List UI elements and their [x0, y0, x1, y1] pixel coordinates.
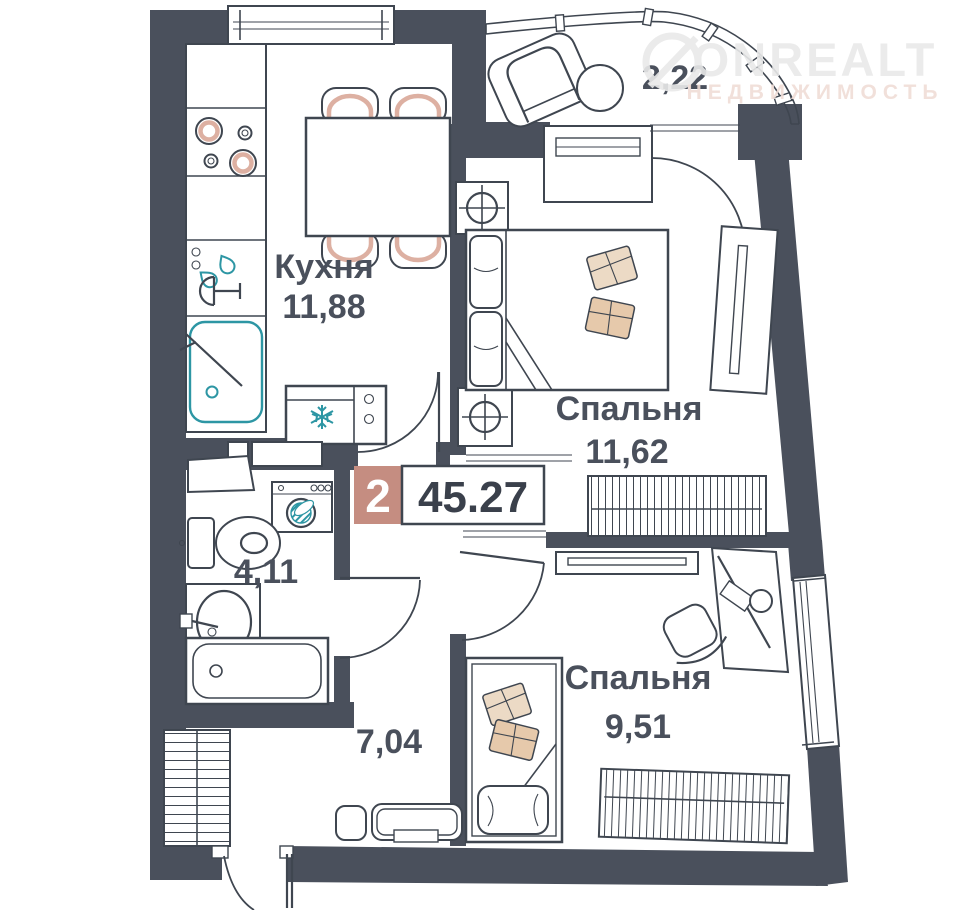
dining-table: [306, 118, 450, 236]
kitchen-label: Кухня: [274, 248, 373, 286]
bedroom2-label: Спальня: [565, 659, 712, 697]
nightstand: [458, 388, 512, 446]
threshold: [466, 455, 572, 461]
washing-machine: [272, 482, 332, 532]
kitchen-window: [228, 6, 394, 44]
bathroom-area: 4,11: [234, 553, 298, 591]
door-jamb: [212, 846, 228, 858]
double-bed: [466, 230, 668, 390]
bedroom2-door: [460, 552, 544, 640]
chair: [390, 232, 446, 268]
bathroom-door: [340, 578, 420, 658]
kitchen: [180, 44, 450, 444]
bedroom2-area: 9,51: [605, 708, 671, 746]
bench: [372, 804, 462, 842]
pillow: [478, 786, 548, 834]
bedroom1-label: Спальня: [556, 390, 703, 428]
kitchen-area: 11,88: [282, 288, 365, 326]
fridge: [286, 386, 386, 444]
bath-shelf: [188, 456, 254, 492]
hallway-area: 7,04: [356, 723, 422, 761]
wardrobe: [710, 226, 777, 394]
hall-wardrobe: [164, 730, 230, 846]
kitchen-sink: [180, 322, 262, 422]
entrance-door: [212, 846, 293, 910]
nightstand: [456, 182, 508, 234]
dining-set: [306, 88, 450, 268]
single-bed: [466, 658, 562, 842]
pouf: [336, 806, 366, 840]
watermark-brand: ONREALT: [693, 33, 938, 86]
bedroom1-area: 11,62: [585, 433, 668, 471]
bathtub: [186, 638, 328, 704]
total-area-badge: 2 45.27: [354, 466, 544, 524]
floor-plan-svg: Кухня 11,88 2,22 Спальня 11,62 4,11 7,04…: [0, 0, 960, 910]
threshold: [463, 531, 546, 537]
wardrobe-hatched: [599, 769, 789, 844]
vent-shaft: [252, 442, 322, 466]
shelf: [556, 552, 698, 574]
total-area: 45.27: [418, 473, 528, 522]
rooms-count: 2: [365, 470, 391, 522]
watermark-tagline: НЕДВИЖИМОСТЬ: [687, 81, 944, 104]
radiator-wardrobe: [588, 476, 766, 536]
side-table: [577, 65, 623, 111]
bedroom2-window: [793, 575, 839, 749]
floor-plan: Кухня 11,88 2,22 Спальня 11,62 4,11 7,04…: [0, 0, 960, 910]
desk: [712, 548, 788, 672]
